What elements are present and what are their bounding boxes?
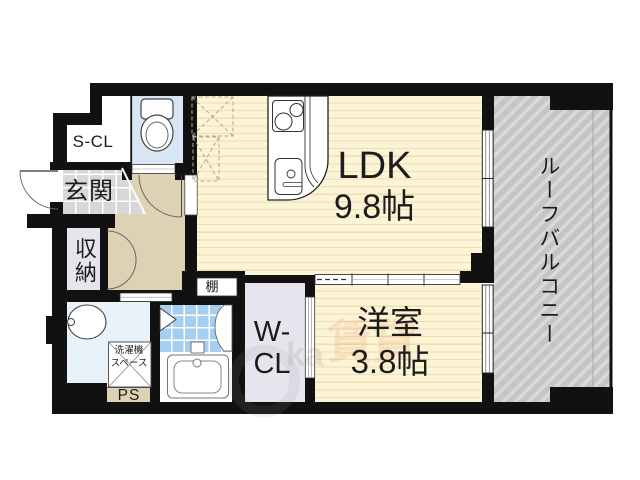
washbasin-fixture <box>68 305 107 339</box>
roof-balcony-label: ルーフバルコニー <box>537 148 559 354</box>
laundry-line1: 洗濯機 <box>105 345 153 358</box>
bath-folding-door-icon <box>160 308 176 331</box>
bedroom-name: 洋室 <box>305 306 475 340</box>
pipe-space-label: PS <box>106 388 152 404</box>
ldk-bedroom-sliding-door <box>315 274 460 286</box>
stove-burner-small <box>290 104 303 117</box>
ldk-label: LDK 9.8帖 <box>282 147 467 225</box>
toilet-fixture <box>141 99 173 151</box>
stove-burner-large <box>275 113 292 130</box>
shoe-closet-label: S-CL <box>62 133 124 151</box>
storage-label: 収納 <box>72 234 95 288</box>
wcl-line1: W- <box>242 317 302 349</box>
walk-in-closet-label: W- CL <box>242 317 302 380</box>
storage-double-door-swing <box>107 231 136 289</box>
bathroom-fixtures <box>160 305 232 398</box>
floor-plan: 賃貸 ka LDK 9.8帖 洋室 3.8帖 ルーフバルコニー 玄関 S-CL … <box>0 0 640 480</box>
washroom-door <box>120 293 172 302</box>
laundry-space-label: 洗濯機 スペース <box>105 345 153 370</box>
ldk-name: LDK <box>282 147 467 187</box>
bedroom-window <box>482 285 493 373</box>
bedroom-label: 洋室 3.8帖 <box>305 306 475 380</box>
ldk-window <box>482 130 493 227</box>
entrance-label: 玄関 <box>59 180 119 205</box>
wcl-line2: CL <box>242 349 302 381</box>
appliance-placeholder-boxes <box>192 97 233 181</box>
bath-counter <box>215 305 232 351</box>
hallway-ldk-door <box>139 175 197 217</box>
bedroom-size: 3.8帖 <box>305 345 475 379</box>
shelf-label: 棚 <box>192 280 232 294</box>
bathtub-faucet <box>193 359 201 367</box>
toilet-door <box>132 165 175 174</box>
ldk-size: 9.8帖 <box>282 190 467 225</box>
laundry-line2: スペース <box>105 358 153 371</box>
bath-step <box>191 342 204 353</box>
